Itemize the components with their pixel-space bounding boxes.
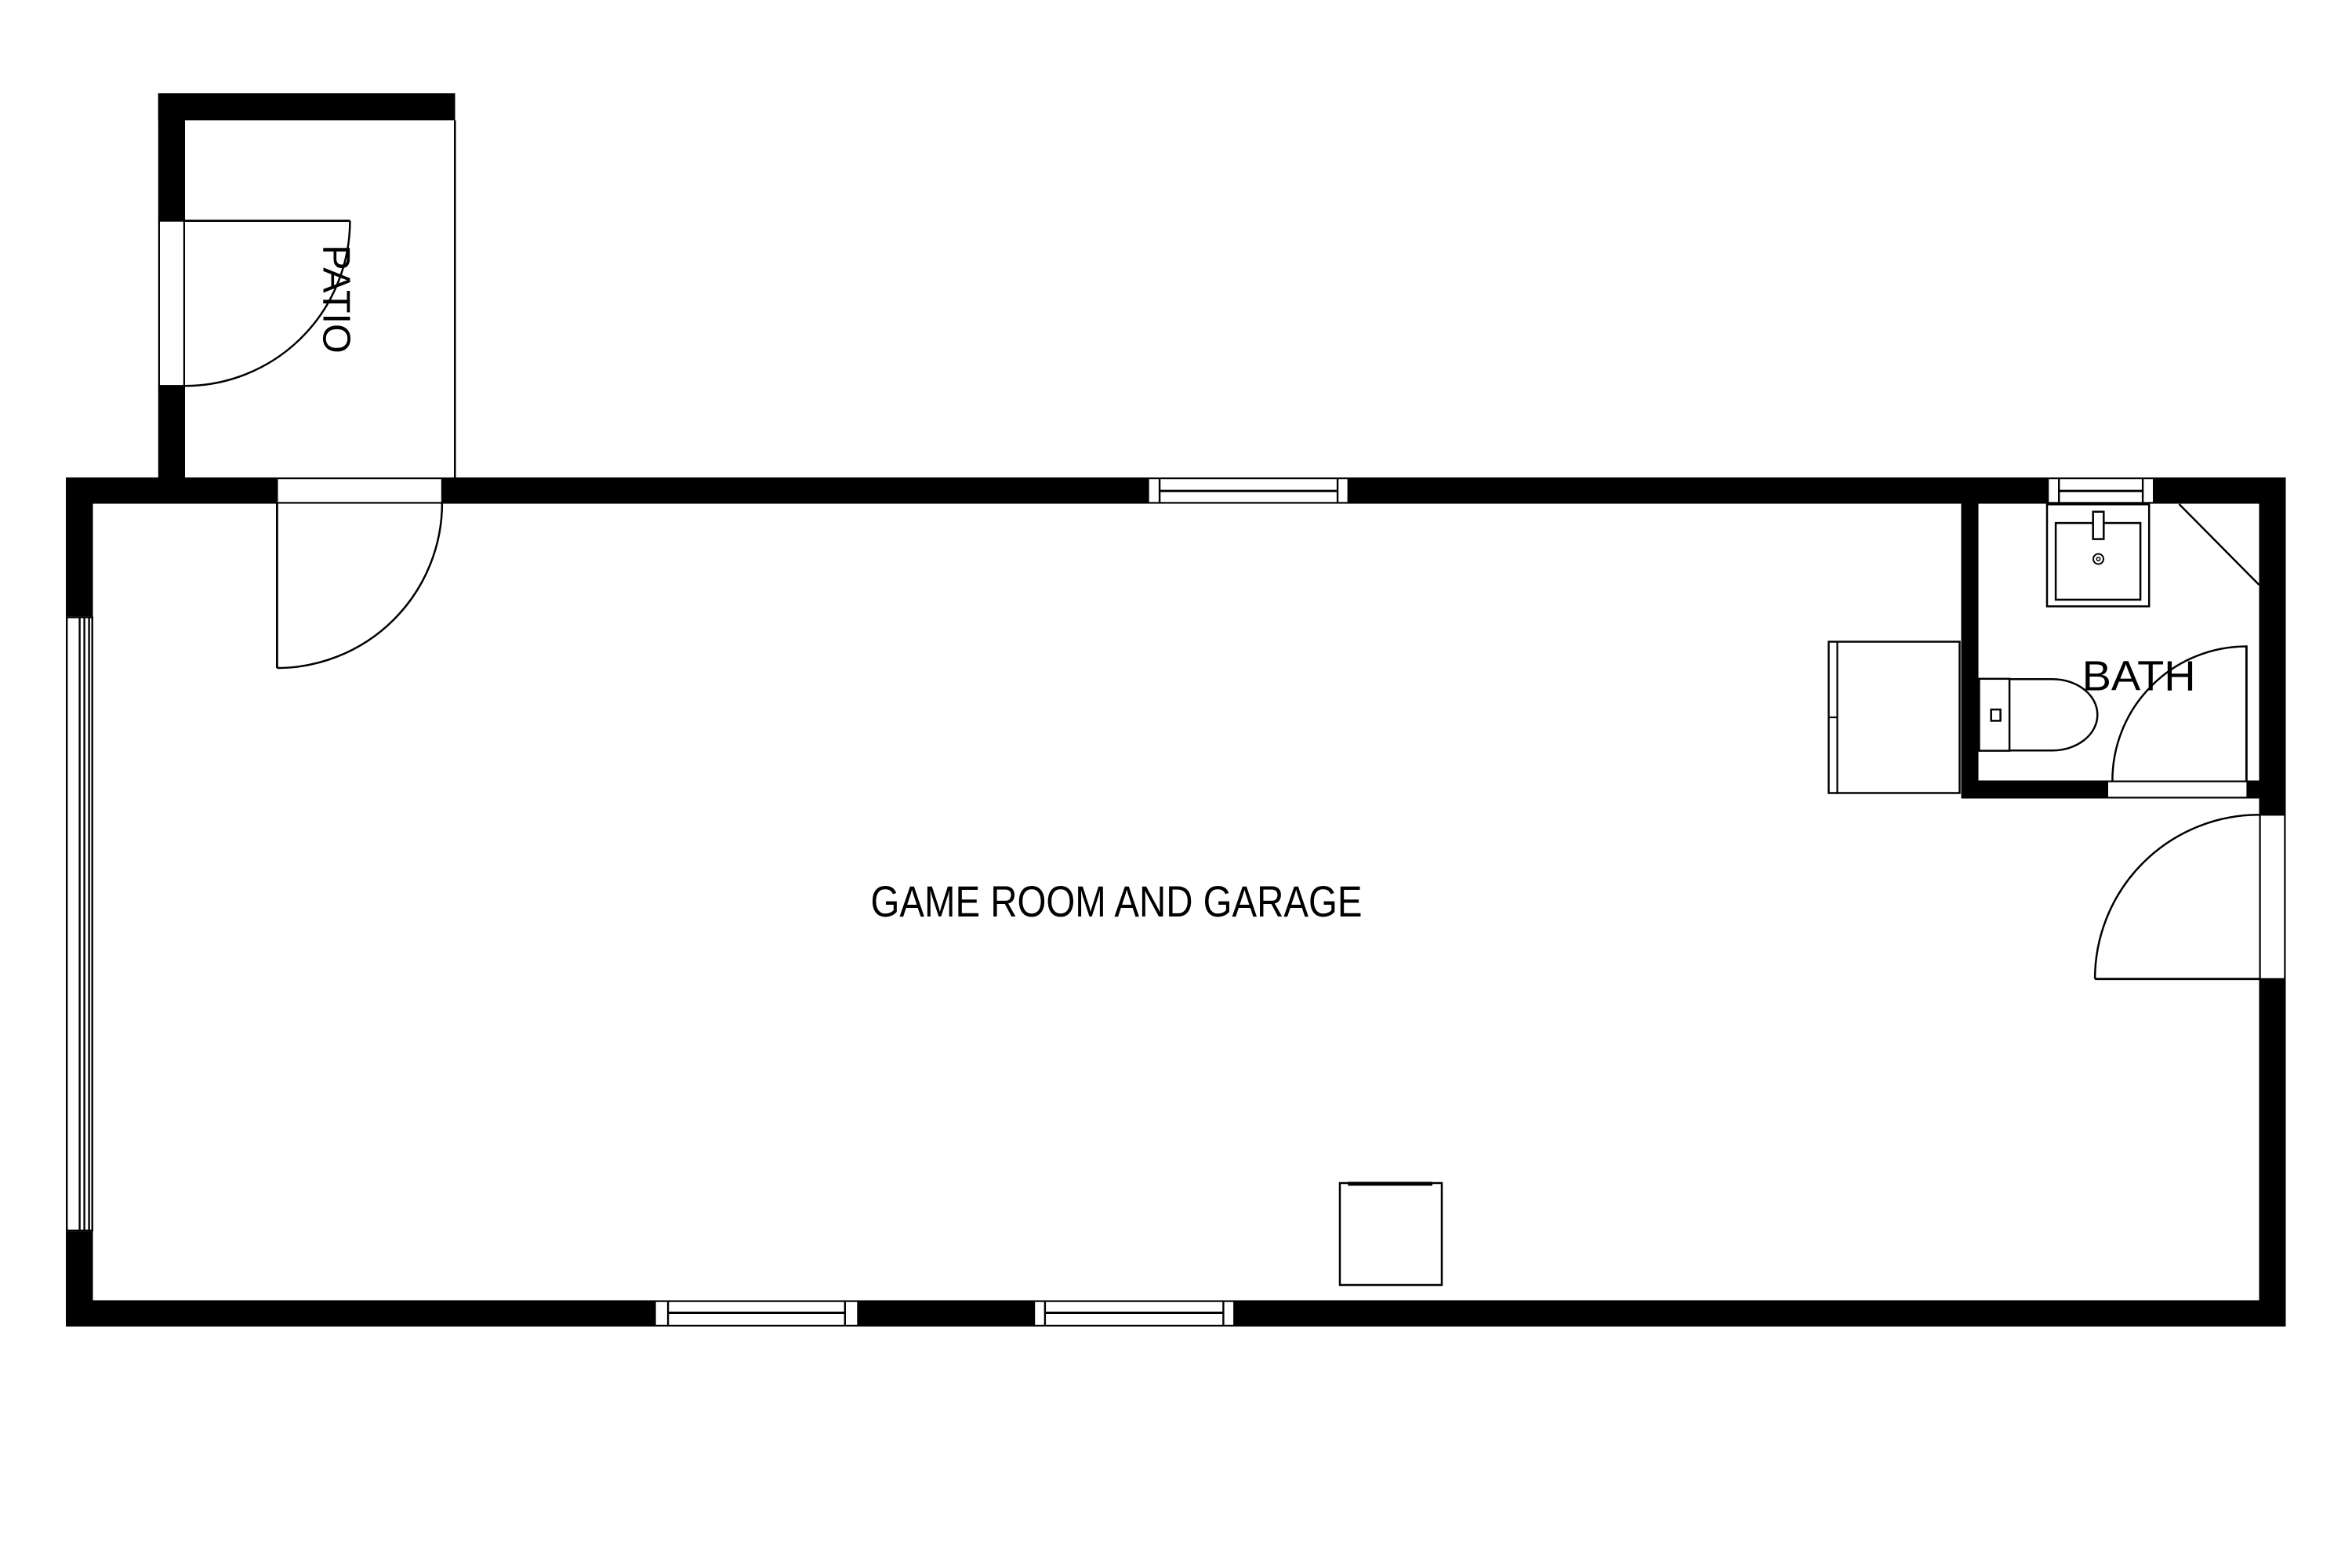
svg-text:GAME ROOM AND GARAGE: GAME ROOM AND GARAGE bbox=[871, 877, 1363, 926]
svg-text:BATH: BATH bbox=[2082, 652, 2196, 699]
svg-text:PATIO: PATIO bbox=[314, 245, 358, 353]
